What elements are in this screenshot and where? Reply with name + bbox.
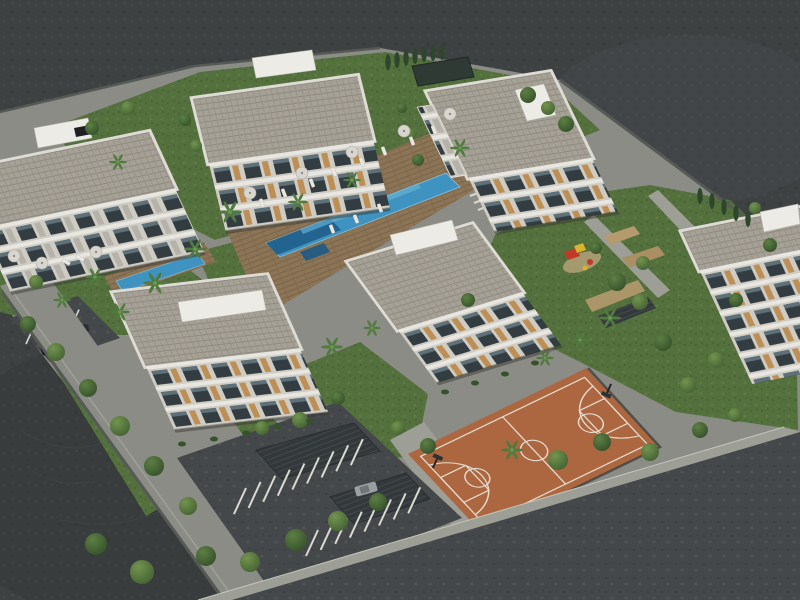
parasol [346,146,358,158]
tree [130,560,154,584]
parasol [244,187,256,199]
tree [608,273,626,291]
tree [391,421,405,435]
tree [558,116,574,132]
tree [728,408,742,422]
tree [520,87,536,103]
parasol [398,125,410,137]
tree [47,343,65,361]
tree [85,121,99,135]
parasol [8,250,20,262]
tree [110,416,130,436]
tree [179,497,197,515]
tree [763,238,777,252]
tree [461,293,475,307]
tree [144,456,164,476]
tree [79,379,97,397]
tree [548,450,568,470]
tree [331,391,345,405]
tree [255,421,269,435]
tree [590,242,602,254]
tree [20,316,36,332]
tree [729,293,743,307]
tree [593,433,611,451]
tree [196,546,216,566]
tree [190,140,202,152]
tree [85,533,107,555]
tree [369,493,387,511]
playground-equipment [587,259,593,265]
tree [397,103,407,113]
aerial-render [0,0,800,600]
tree [692,422,708,438]
tree [636,256,650,270]
parasol [296,167,308,179]
tree [292,412,308,428]
tree [179,114,191,126]
tree [420,438,436,454]
tree [240,552,260,572]
tree [632,294,648,310]
parasol [36,257,48,269]
parasol [444,108,456,120]
tree [541,101,555,115]
playground-equipment [583,266,588,271]
tree [654,333,672,351]
tree [412,154,424,166]
tree [29,275,43,289]
parasol [90,246,102,258]
tree [121,101,135,115]
tree [285,529,307,551]
tree [708,352,724,368]
tree [641,443,659,461]
tree [749,202,761,214]
tree [680,377,696,393]
tree [328,511,348,531]
